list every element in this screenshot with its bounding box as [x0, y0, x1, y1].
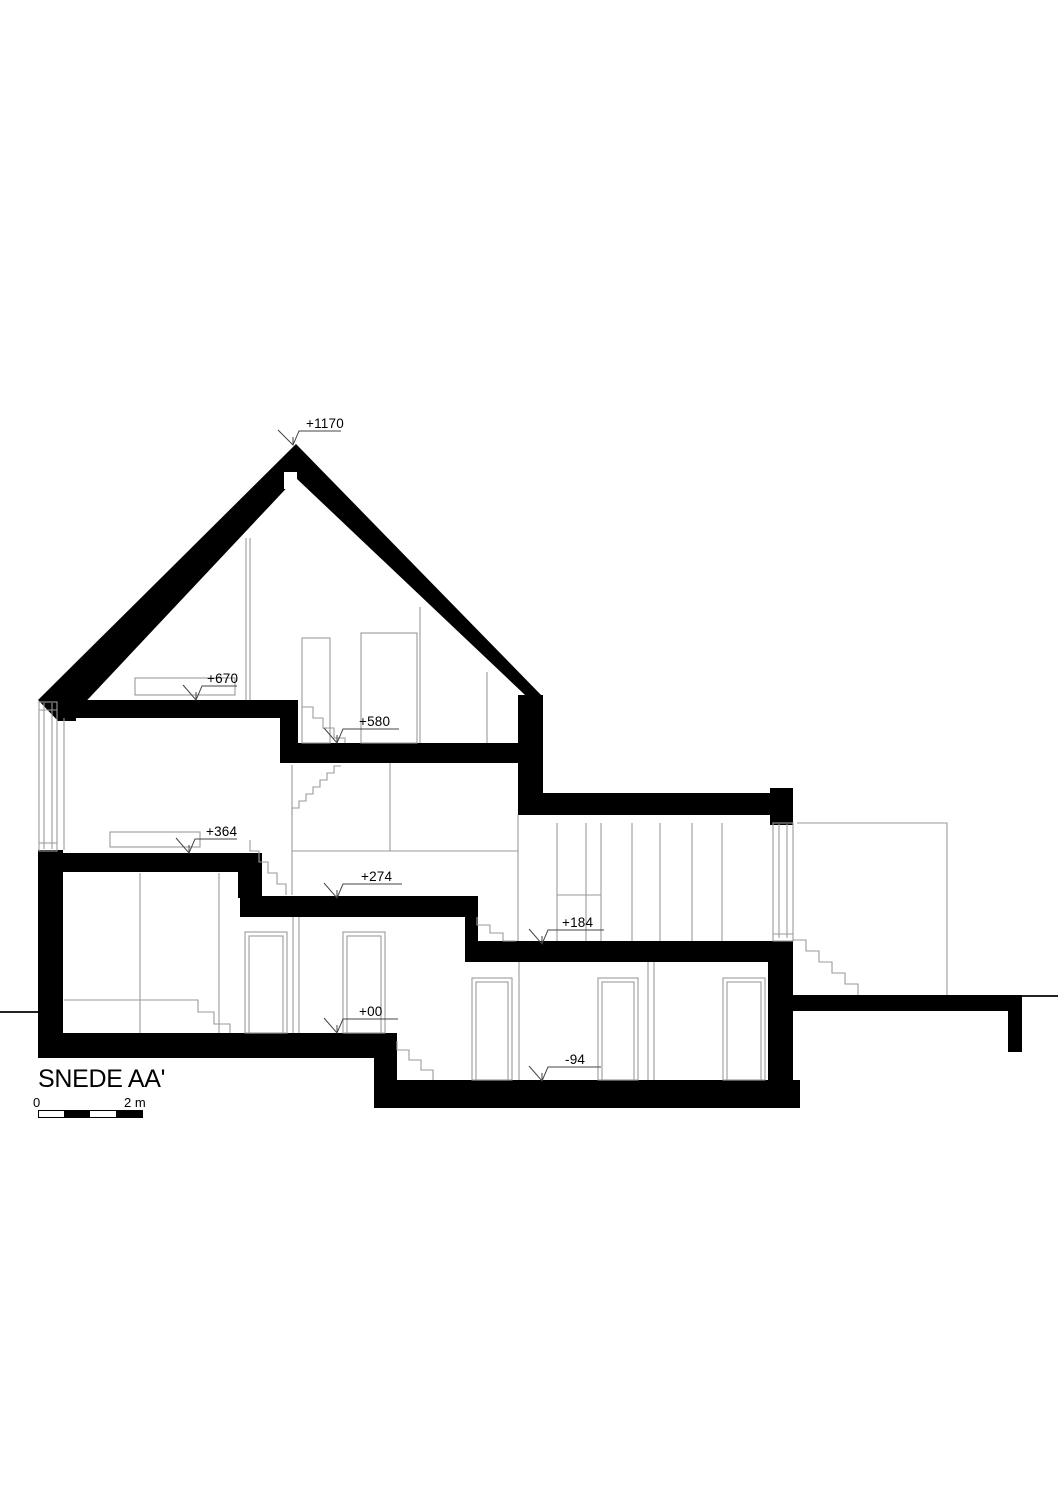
upper-rear-floor-slab	[285, 743, 543, 763]
level-marker-mid: +274	[324, 869, 402, 898]
upper-front-floor-slab	[38, 853, 243, 872]
level-label-upper-front: +364	[206, 824, 237, 839]
stair-front-background	[64, 1000, 230, 1033]
level-marker-attic: +670	[135, 671, 238, 700]
level-marker-ground-rear: +184	[529, 915, 604, 944]
scale-bar: 0 2 m	[33, 1095, 146, 1118]
section-drawing: +1170 +670 +580 +364 +274 +184 +00	[0, 0, 1058, 1497]
scale-start-label: 0	[33, 1095, 40, 1110]
flat-roof-slab	[518, 793, 793, 815]
level-marker-upper-front: +364	[110, 824, 237, 853]
rear-window	[773, 823, 793, 941]
level-label-attic: +670	[207, 671, 238, 686]
stair-to-basement	[397, 1041, 433, 1080]
level-label-upper-rear: +580	[359, 714, 390, 729]
stair-exterior-garden	[793, 940, 858, 995]
stair-main-flight-upper	[292, 766, 341, 815]
flat-roof-parapet	[770, 788, 793, 825]
basement-floor-slab	[374, 1080, 800, 1108]
scale-end-label: 2 m	[124, 1095, 146, 1110]
mid-floor-slab	[240, 896, 478, 917]
ground-rear-floor-slab	[465, 941, 793, 962]
drawing-sheet: +1170 +670 +580 +364 +274 +184 +00	[0, 0, 1058, 1497]
terrace-edge-wall	[1008, 995, 1022, 1052]
drawing-title: SNEDE AA'	[38, 1065, 165, 1093]
split-wall-upper	[238, 853, 262, 898]
background-structure-outline	[797, 823, 947, 995]
ground-front-floor-slab	[38, 1033, 397, 1058]
left-window	[39, 702, 64, 851]
basement-doors	[472, 962, 765, 1080]
level-label-mid: +274	[361, 869, 392, 884]
scale-bar-segment-2	[116, 1111, 143, 1118]
attic-floor-slab	[57, 700, 298, 718]
level-marker-ridge: +1170	[278, 416, 344, 445]
level-label-ground-rear: +184	[562, 915, 593, 930]
level-label-ground-front: +00	[359, 1004, 383, 1019]
terrace-slab	[793, 995, 1022, 1011]
level-label-ridge: +1170	[306, 416, 344, 431]
scale-bar-segment-1	[64, 1111, 90, 1118]
stair-mid-to-rear	[477, 917, 516, 941]
section-cuts	[38, 444, 1022, 1108]
level-marker-basement: -94	[529, 1052, 601, 1081]
ridge-notch	[284, 472, 297, 489]
level-label-basement: -94	[565, 1052, 585, 1067]
left-wall	[38, 850, 63, 1058]
